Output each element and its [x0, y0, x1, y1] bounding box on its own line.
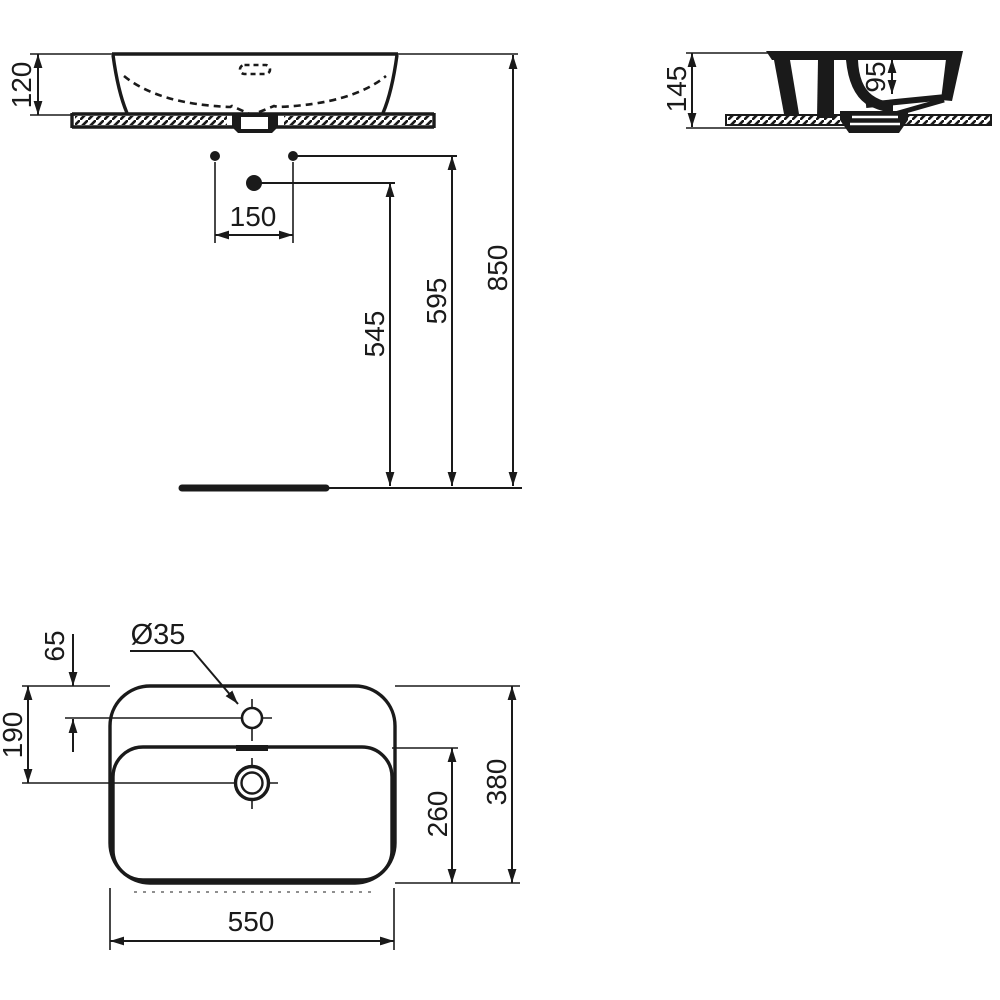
dim-label-850: 850	[482, 245, 513, 292]
dim-label-145: 145	[661, 66, 692, 113]
front-view: 150 120 545 595 850	[6, 54, 522, 488]
dim-545: 545	[359, 183, 390, 486]
dim-850: 850	[482, 55, 513, 486]
dim-label-120: 120	[6, 62, 37, 109]
dim-380: 380	[395, 686, 520, 883]
dim-550: 550	[110, 888, 394, 950]
dim-label-595: 595	[421, 278, 452, 325]
dim-95: 95	[860, 59, 892, 94]
dim-190: 190	[0, 686, 110, 783]
overflow-slot-dashed	[240, 65, 270, 74]
basin-right-wall	[383, 55, 397, 113]
drain-hole	[22, 758, 278, 809]
dim-label-190: 190	[0, 712, 28, 759]
technical-drawing-canvas: 150 120 545 595 850	[0, 0, 1000, 1000]
dim-label-dia35: Ø35	[131, 619, 186, 651]
dim-150: 150	[215, 162, 293, 243]
side-view: 145 95	[661, 51, 991, 133]
dim-label-545: 545	[359, 311, 390, 358]
dim-label-380: 380	[481, 759, 512, 806]
dim-label-550: 550	[228, 906, 275, 937]
dim-260: 260	[392, 748, 458, 883]
dim-label-260: 260	[422, 791, 453, 838]
basin-left-wall	[113, 55, 127, 113]
dim-label-65: 65	[39, 630, 70, 661]
dim-label-150: 150	[230, 201, 277, 232]
countertop-hatch-left	[75, 116, 227, 125]
countertop-hatch-right	[284, 116, 432, 125]
dim-label-95: 95	[860, 61, 891, 92]
dim-65: 65	[39, 630, 73, 752]
dim-595: 595	[421, 156, 452, 486]
plan-view: Ø35 65 190 260 380	[0, 619, 520, 950]
fixing-hole-left-dot	[210, 151, 220, 161]
drain-flange	[232, 113, 278, 133]
bowl-inner-contour-dashed	[124, 76, 386, 115]
dim-120: 120	[6, 54, 75, 115]
side-drain-blob	[840, 111, 908, 133]
tap-hole	[65, 699, 272, 741]
dim-dia35: Ø35	[130, 619, 238, 704]
